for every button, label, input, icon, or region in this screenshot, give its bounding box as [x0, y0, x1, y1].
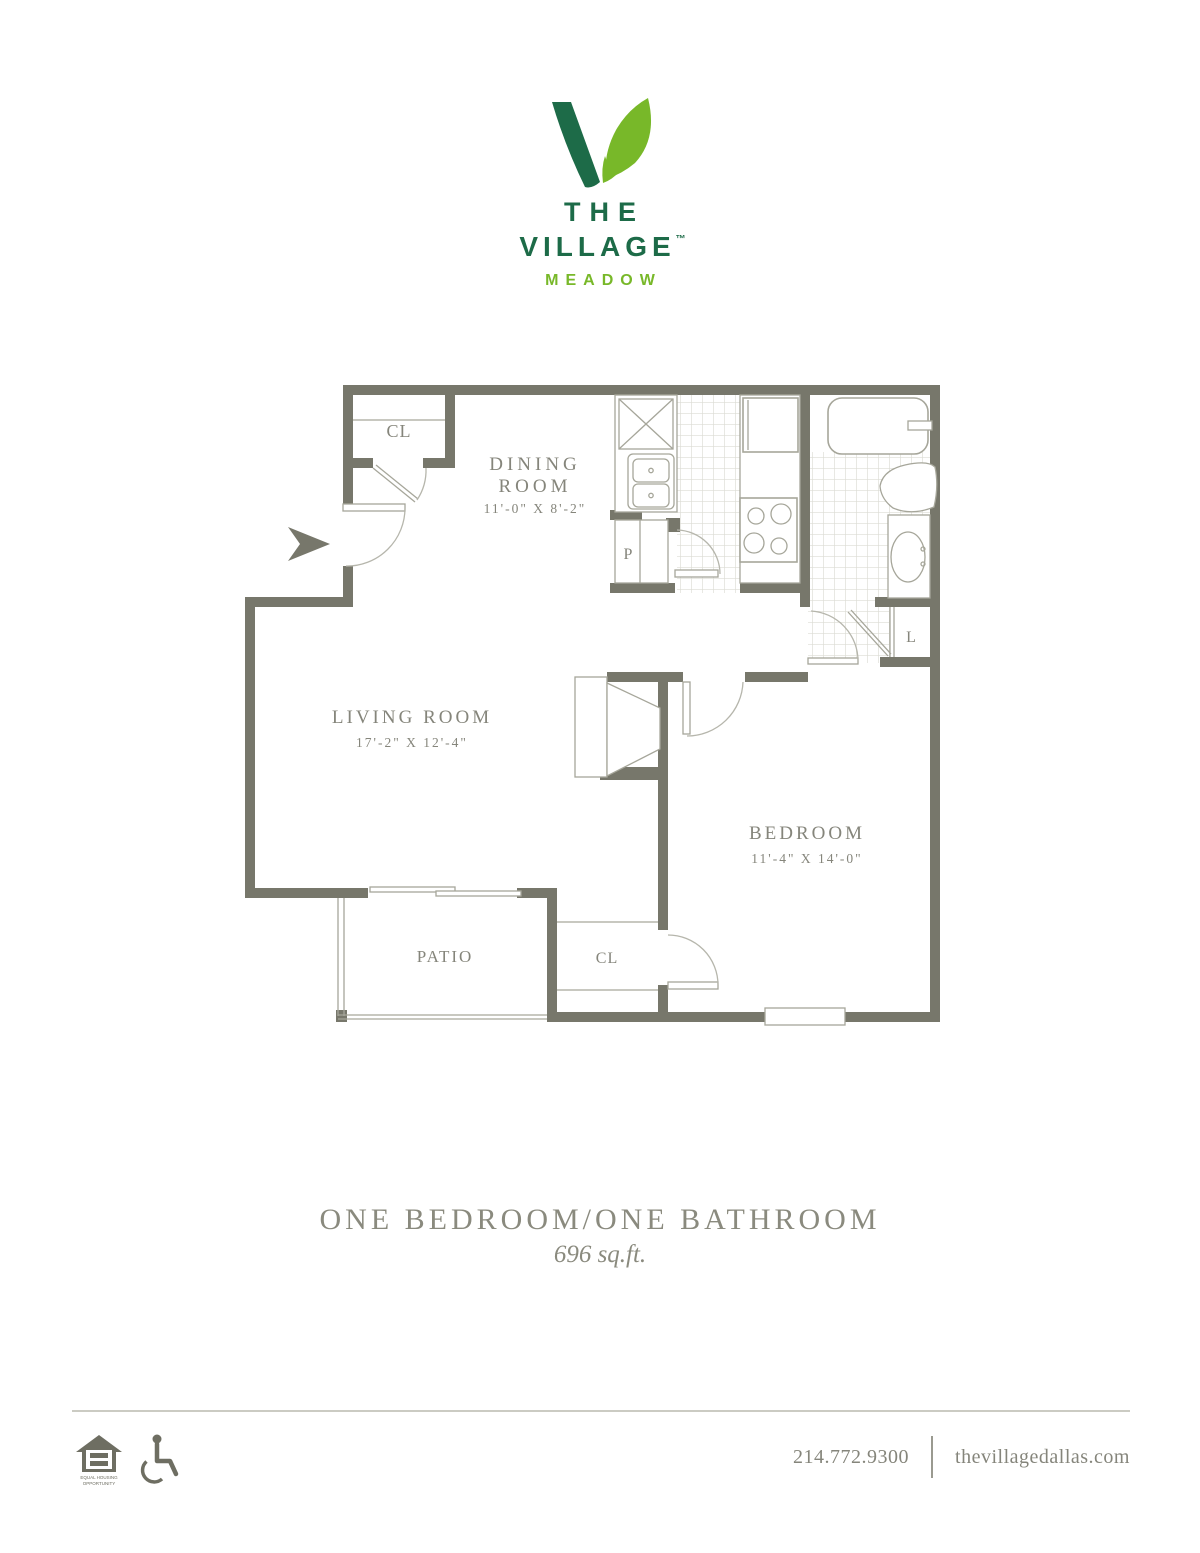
- logo-text-meadow: MEADOW: [0, 272, 1200, 290]
- bedroom-label: BEDROOM: [749, 823, 865, 844]
- entry-closet-door-arc: [417, 468, 426, 500]
- kitchen-floor-tiles: [677, 395, 740, 593]
- wall-bedroom-top-left: [607, 672, 683, 682]
- entry-arrow-icon: [288, 527, 330, 561]
- dining-room-dims: 11'-0" X 8'-2": [484, 501, 587, 516]
- wardrobe-cabinet: [575, 677, 607, 777]
- wall-pantry-bottom: [610, 583, 675, 593]
- wall-kitchen-bottom: [740, 583, 810, 593]
- unit-sqft: 696 sq.ft.: [0, 1241, 1200, 1269]
- website-url: thevillagedallas.com: [955, 1446, 1130, 1469]
- wall-entry-closet-right: [445, 385, 455, 468]
- phone-number: 214.772.9300: [793, 1446, 909, 1469]
- wall-entry-closet-left: [343, 385, 353, 468]
- bathtub-faucet: [908, 421, 932, 430]
- dining-room-label: DINING: [489, 454, 581, 475]
- wall-living-bottom: [245, 888, 368, 898]
- floor-plan: CL DINING ROOM 11'-0" X 8'-2" P L LIVING…: [240, 380, 950, 1030]
- living-room-dims: 17'-2" X 12'-4": [356, 735, 468, 750]
- wall-patio-closet-divider: [547, 888, 557, 1022]
- trademark-symbol: ™: [676, 234, 686, 245]
- village-logo-icon: [535, 96, 665, 191]
- logo-text-the: THE: [0, 197, 1200, 228]
- vanity-counter: [888, 515, 930, 598]
- patio-sliding-door-panel2: [436, 891, 521, 896]
- wall-entry-closet-stub-left: [343, 458, 373, 468]
- dining-room-label2: ROOM: [498, 476, 571, 497]
- wall-top: [343, 385, 940, 395]
- wall-bedroom-top-right: [745, 672, 808, 682]
- pantry-label: P: [624, 546, 633, 563]
- logo: THE VILLAGE™ MEADOW: [0, 96, 1200, 290]
- bedroom-closet-label: CL: [596, 950, 618, 967]
- wall-bathroom-left: [800, 385, 810, 607]
- bedroom-dims: 11'-4" X 14'-0": [751, 851, 862, 866]
- entry-closet-door: [373, 468, 415, 502]
- contact-divider: [931, 1436, 933, 1478]
- wall-entry-step: [245, 597, 353, 607]
- entry-door-arc: [346, 508, 405, 566]
- bedroom-door: [683, 682, 690, 734]
- flyer-page: THE VILLAGE™ MEADOW: [0, 0, 1200, 1553]
- eho-caption: EQUAL HOUSING: [80, 1475, 118, 1480]
- bathroom-door: [808, 658, 858, 664]
- patio-label: PATIO: [417, 947, 474, 966]
- pantry-door: [675, 570, 718, 577]
- wardrobe-open-doors: [607, 683, 660, 776]
- refrigerator: [743, 398, 798, 452]
- wall-entry-jamb-upper: [343, 468, 353, 506]
- footer-contact: 214.772.9300 thevillagedallas.com: [793, 1436, 1130, 1478]
- footer-icons: EQUAL HOUSING OPPORTUNITY: [74, 1433, 182, 1491]
- accessibility-icon: [136, 1433, 182, 1489]
- bedroom-closet-door-arc: [668, 935, 718, 985]
- living-room-label: LIVING ROOM: [332, 707, 492, 728]
- logo-text-village: VILLAGE™: [0, 231, 1200, 263]
- linen-label: L: [906, 629, 916, 646]
- wall-linen-bottom: [880, 657, 940, 667]
- wall-living-left: [245, 597, 255, 898]
- bedroom-door-arc: [687, 682, 743, 736]
- bedroom-closet-door: [668, 982, 718, 989]
- equal-housing-icon: EQUAL HOUSING OPPORTUNITY: [74, 1433, 124, 1491]
- wall-entry-closet-stub-right: [423, 458, 455, 468]
- entry-closet-label: CL: [386, 421, 411, 441]
- eho-caption2: OPPORTUNITY: [83, 1481, 115, 1486]
- unit-title: ONE BEDROOM/ONE BATHROOM: [0, 1203, 1200, 1237]
- wall-bottom: [547, 1012, 940, 1022]
- footer-divider: [72, 1410, 1130, 1412]
- bedroom-window: [765, 1008, 845, 1025]
- entry-door: [343, 504, 405, 511]
- wall-bedroom-left-lower: [658, 985, 668, 1022]
